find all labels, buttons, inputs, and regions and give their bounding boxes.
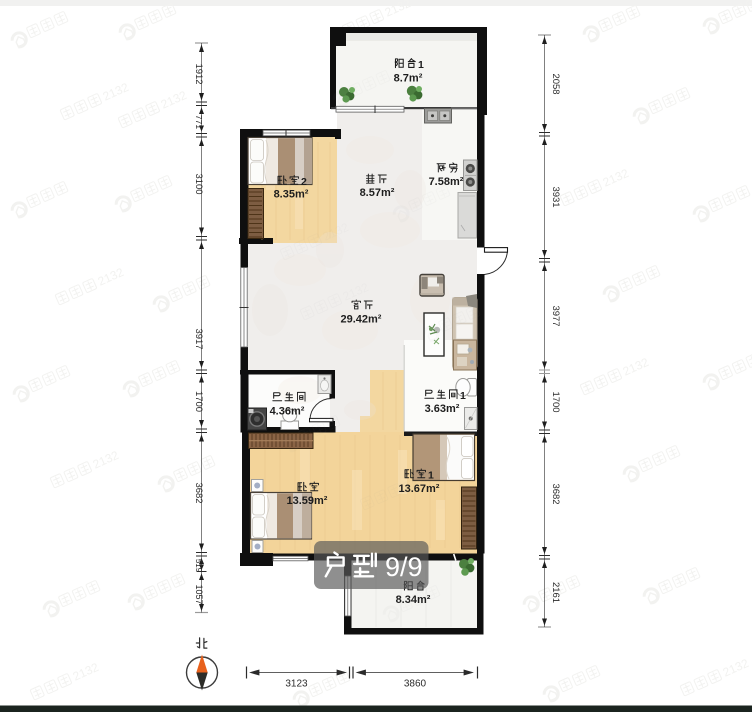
svg-text:8.35m²: 8.35m² (274, 189, 309, 201)
svg-text:3917: 3917 (193, 328, 204, 349)
svg-text:1: 1 (418, 59, 424, 71)
svg-text:2161: 2161 (550, 582, 561, 603)
svg-text:1700: 1700 (550, 391, 561, 412)
svg-text:1057: 1057 (194, 584, 204, 604)
svg-text:8.7m²: 8.7m² (394, 73, 423, 85)
svg-text:3682: 3682 (550, 483, 561, 504)
svg-text:3977: 3977 (550, 305, 561, 326)
svg-text:519: 519 (194, 559, 203, 573)
svg-text:9/9: 9/9 (385, 552, 423, 582)
svg-text:3123: 3123 (285, 679, 308, 690)
svg-text:3931: 3931 (550, 186, 561, 207)
svg-text:3100: 3100 (193, 173, 204, 194)
svg-text:13.59m²: 13.59m² (287, 495, 328, 507)
svg-text:4.36m²: 4.36m² (270, 406, 305, 418)
svg-text:2: 2 (301, 176, 307, 188)
svg-text:3.63m²: 3.63m² (425, 403, 460, 415)
svg-text:2058: 2058 (550, 73, 561, 94)
svg-text:1700: 1700 (193, 391, 204, 412)
svg-text:3682: 3682 (193, 482, 204, 503)
svg-text:1: 1 (460, 390, 466, 402)
svg-text:29.42m²: 29.42m² (341, 314, 382, 326)
svg-text:8.57m²: 8.57m² (360, 187, 395, 199)
svg-text:1912: 1912 (193, 63, 204, 84)
svg-text:3860: 3860 (404, 679, 427, 690)
svg-text:771: 771 (194, 115, 204, 129)
